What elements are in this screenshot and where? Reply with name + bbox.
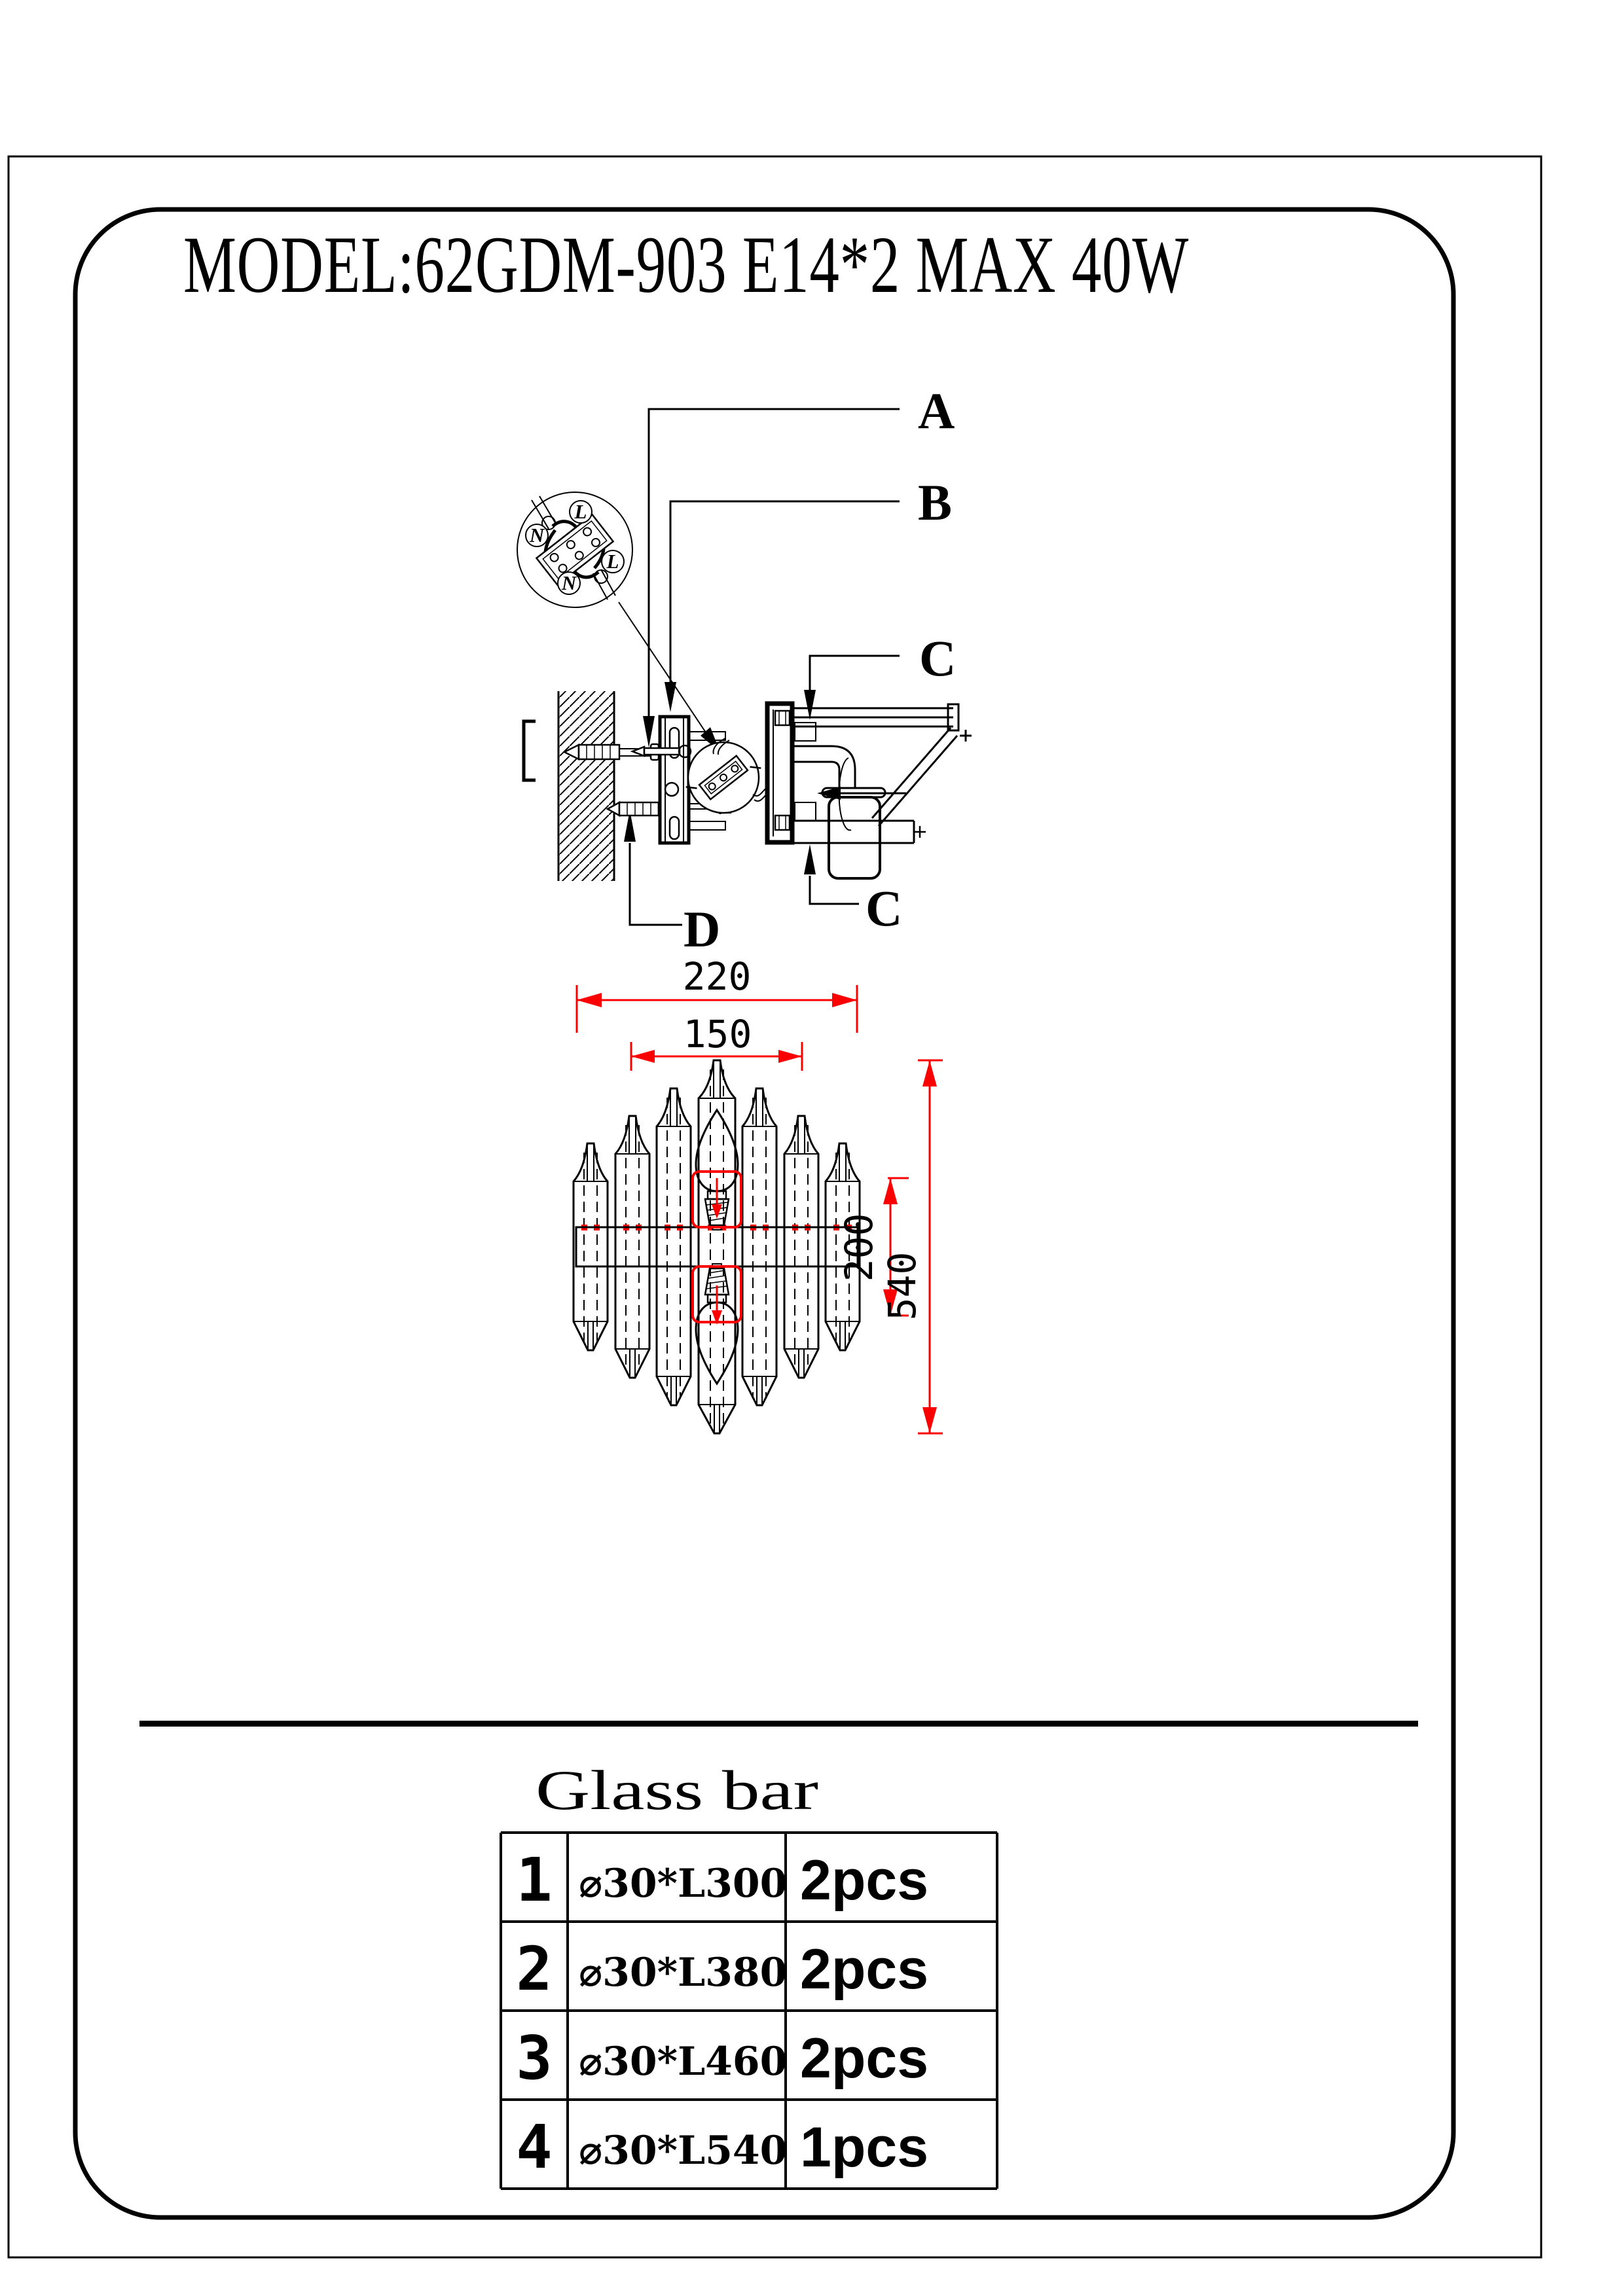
wire-label-n-left: N: [529, 524, 545, 547]
table-row: 4 ⌀30*L540 1pcs: [516, 2112, 928, 2182]
dim-text-220: 220: [683, 954, 752, 999]
instruction-sheet: MODEL:62GDM-903 E14*2 MAX 40W A B C C D: [0, 0, 1623, 2296]
bracket-glyph: [524, 721, 536, 780]
knurled-screw-bottom: [795, 802, 816, 821]
arrow-a-icon: [643, 716, 655, 747]
table-row: 1 ⌀30*L300 2pcs: [516, 1845, 928, 1915]
glass-bar-rod: [784, 1116, 818, 1378]
terminal-detail-circle: [686, 738, 769, 813]
label-b: B: [918, 474, 952, 531]
knurled-screw-top: [795, 723, 816, 741]
glass-bar-title: Glass bar: [536, 1759, 818, 1821]
candle-socket-cup: [829, 797, 880, 878]
row-no: 2: [516, 1934, 552, 2004]
section-divider: [139, 1721, 1418, 1727]
dim-text-150: 150: [684, 1012, 752, 1056]
dim-text-540: 540: [880, 1252, 924, 1321]
glass-bar-rod: [615, 1116, 649, 1378]
row-size: ⌀30*L380: [579, 1950, 787, 1996]
arrow-c-top-icon: [804, 690, 816, 720]
hex-bolt-top: [775, 711, 790, 725]
row-no: 3: [516, 2023, 552, 2093]
table-row: 2 ⌀30*L380 2pcs: [516, 1934, 928, 2004]
arrow-c-bottom-icon: [804, 844, 816, 874]
lamp-bracket: [767, 704, 972, 878]
glass-bar-rod: [742, 1088, 776, 1405]
glass-bars: [574, 1060, 860, 1433]
glass-bar-table: 1 ⌀30*L300 2pcs 2 ⌀30*L380 2pcs 3 ⌀30*L4…: [501, 1833, 997, 2189]
table-row: 3 ⌀30*L460 2pcs: [516, 2023, 928, 2093]
row-no: 1: [516, 1845, 552, 1915]
screw-cross-icon: [960, 730, 972, 742]
label-a: A: [918, 382, 955, 439]
label-c-top: C: [919, 630, 956, 687]
wall-section: [524, 691, 614, 881]
row-size: ⌀30*L460: [579, 2039, 787, 2085]
wire-label-n-bottom: N: [561, 571, 577, 594]
model-title: MODEL:62GDM-903 E14*2 MAX 40W: [183, 220, 1189, 310]
dim-text-200: 200: [837, 1213, 881, 1282]
row-qty: 1pcs: [800, 2116, 928, 2179]
hex-bolt-bottom: [775, 816, 790, 830]
row-size: ⌀30*L300: [579, 1861, 787, 1907]
row-qty: 2pcs: [800, 2027, 928, 2090]
glass-bar-rod: [574, 1143, 608, 1350]
row-no: 4: [516, 2112, 552, 2182]
wiring-detail-circle: L N L N: [517, 492, 632, 607]
row-size: ⌀30*L540: [579, 2128, 787, 2174]
elbow-pipe: [792, 746, 855, 789]
label-c-bottom: C: [866, 880, 902, 937]
wire-label-l-right: L: [606, 550, 619, 573]
lamp-front-view: [574, 1060, 860, 1433]
glass-bar-rod: [699, 1060, 735, 1433]
wire-label-l-top: L: [574, 500, 587, 523]
dim-overall-height: 540: [880, 1060, 943, 1433]
callout-leaders: A B C C D: [624, 382, 956, 958]
glass-bar-rod: [657, 1088, 691, 1405]
row-qty: 2pcs: [800, 1849, 928, 1912]
row-qty: 2pcs: [800, 1938, 928, 2001]
threaded-stud-bottom: [689, 821, 725, 830]
installation-diagram: A B C C D L N L: [517, 382, 972, 958]
detail-leader-line: [619, 602, 707, 734]
label-d: D: [684, 901, 720, 958]
diagonal-brace: [872, 728, 957, 826]
